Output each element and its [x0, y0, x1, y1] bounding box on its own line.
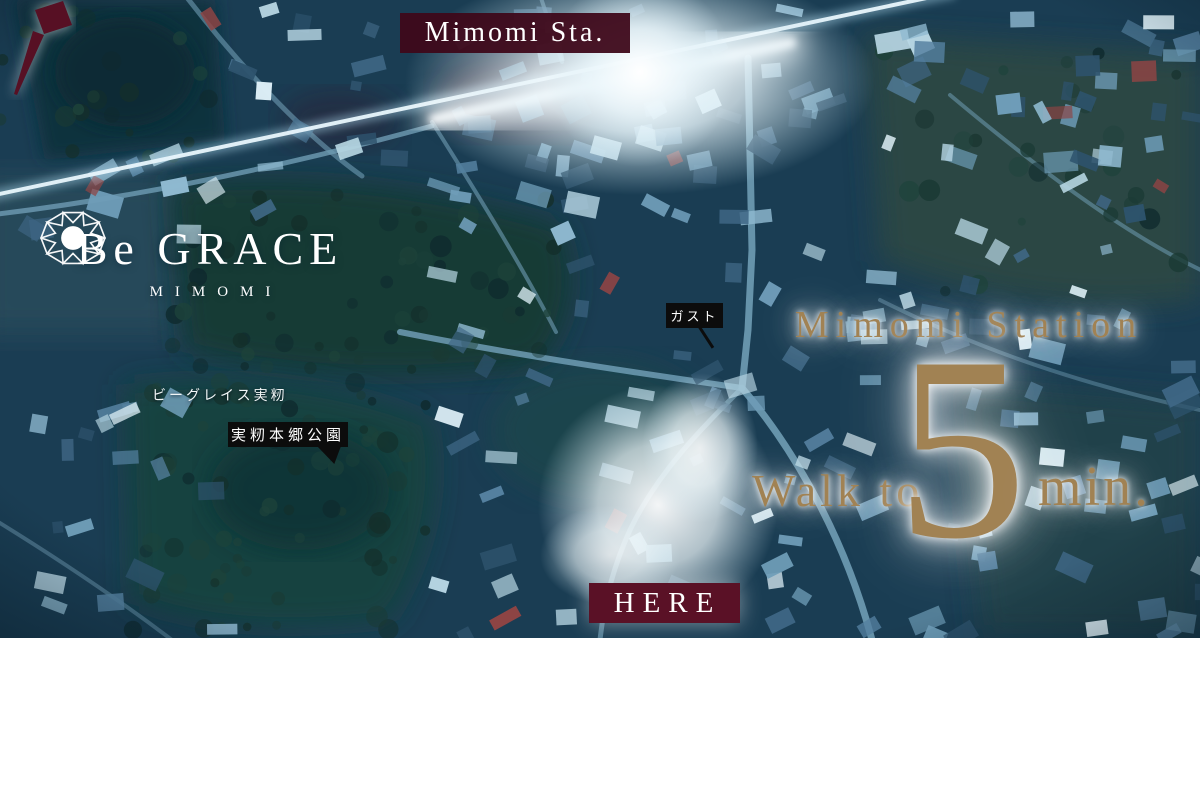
- gusto-label-text: ガスト: [670, 306, 718, 325]
- walk-min-text: min.: [1038, 455, 1151, 519]
- station-badge: Mimomi Sta.: [400, 13, 630, 53]
- info-band: 京成本線 「実籾」 駅 徒歩 5 分 カースペース 2 台設定 ×2階 4 部屋…: [0, 638, 1200, 800]
- here-badge-text: HERE: [614, 587, 722, 620]
- brand-logo: Be GRACE MIMOMI: [40, 210, 380, 301]
- park-label: 実籾本郷公園: [228, 422, 348, 447]
- diamond-icon: [40, 210, 106, 266]
- aerial-map: Mimomi Sta. Be GRACE MIMOMI ビーグレイス実籾 実籾本…: [0, 0, 1200, 638]
- park-label-text: 実籾本郷公園: [231, 424, 345, 445]
- here-badge: HERE: [589, 583, 740, 623]
- logo-subname: MIMOMI: [40, 284, 380, 301]
- here-pin-icon: [0, 0, 76, 100]
- flyer: Mimomi Sta. Be GRACE MIMOMI ビーグレイス実籾 実籾本…: [0, 0, 1200, 800]
- station-badge-label: Mimomi Sta.: [425, 17, 606, 49]
- gusto-label: ガスト: [666, 303, 723, 328]
- site-name-label: ビーグレイス実籾: [152, 385, 288, 405]
- walk-minutes-number: 5: [896, 336, 1027, 561]
